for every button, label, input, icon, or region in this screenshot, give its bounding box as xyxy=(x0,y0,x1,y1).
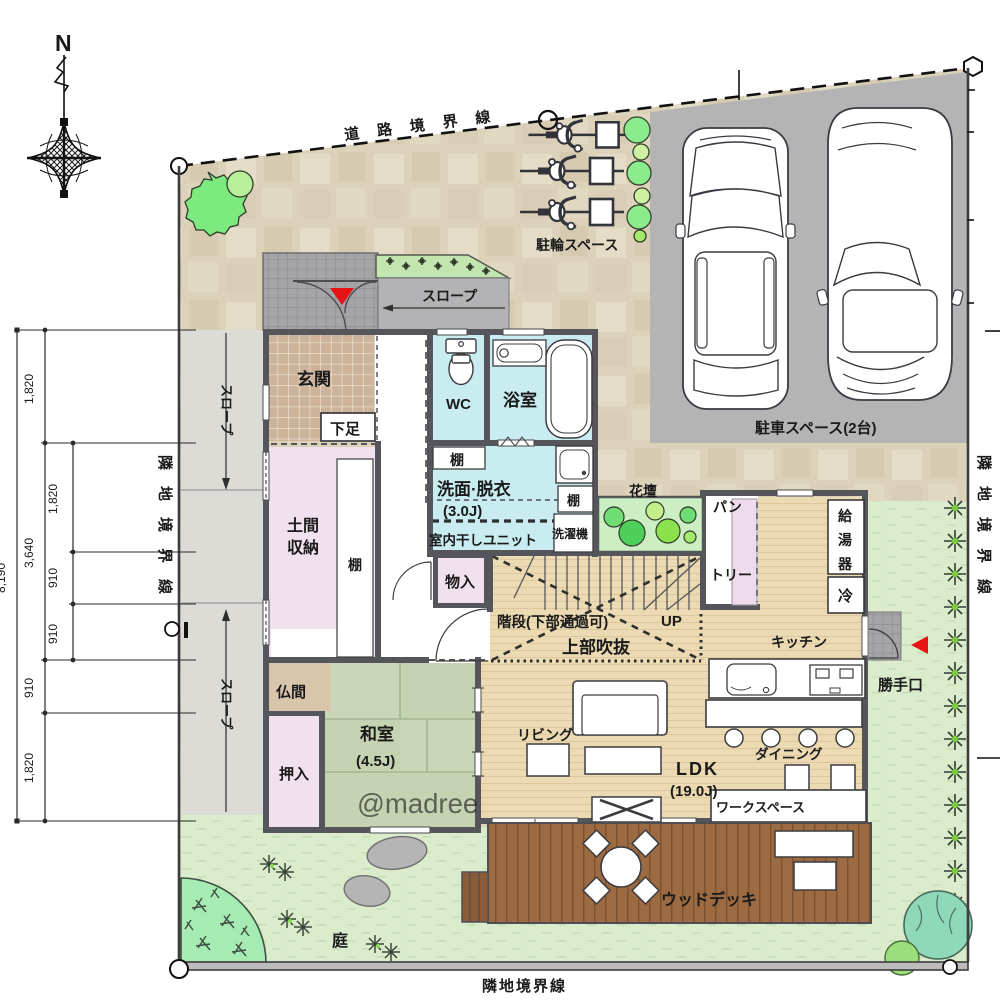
svg-text:仏間: 仏間 xyxy=(276,684,306,701)
svg-text:隣地境界線: 隣地境界線 xyxy=(156,455,174,610)
svg-text:駐輪スペース: 駐輪スペース xyxy=(536,237,618,253)
svg-text:給: 給 xyxy=(838,508,853,524)
svg-text:隣地境界線: 隣地境界線 xyxy=(482,977,567,995)
svg-text:(19.0J): (19.0J) xyxy=(670,783,718,800)
svg-text:(4.5J): (4.5J) xyxy=(356,753,395,770)
svg-text:ダイニング: ダイニング xyxy=(755,746,823,762)
svg-text:物入: 物入 xyxy=(445,573,475,591)
svg-text:8,190: 8,190 xyxy=(0,563,8,593)
svg-text:収納: 収納 xyxy=(287,538,319,557)
svg-text:室内干しユニット: 室内干しユニット xyxy=(429,532,537,548)
svg-text:上部吹抜: 上部吹抜 xyxy=(562,637,631,657)
svg-text:冷: 冷 xyxy=(838,587,853,605)
svg-text:階段(下部通過可): 階段(下部通過可) xyxy=(497,613,608,631)
svg-text:花壇: 花壇 xyxy=(629,483,657,499)
svg-text:1,820: 1,820 xyxy=(22,753,36,783)
svg-text:器: 器 xyxy=(837,556,853,572)
svg-text:ワークスペース: ワークスペース xyxy=(716,800,805,815)
svg-text:ウッドデッキ: ウッドデッキ xyxy=(661,890,757,909)
svg-text:スロープ: スロープ xyxy=(422,288,478,304)
svg-text:庭: 庭 xyxy=(332,931,348,950)
svg-text:浴室: 浴室 xyxy=(503,390,537,410)
svg-text:土間: 土間 xyxy=(287,516,319,535)
svg-text:押入: 押入 xyxy=(279,765,309,783)
svg-text:トリー: トリー xyxy=(710,567,752,583)
svg-text:和室: 和室 xyxy=(360,724,394,744)
svg-text:910: 910 xyxy=(22,678,36,698)
svg-text:棚: 棚 xyxy=(450,452,464,468)
svg-text:スロープ: スロープ xyxy=(219,678,234,730)
svg-text:リビング: リビング xyxy=(517,727,573,743)
svg-text:スロープ: スロープ xyxy=(219,384,234,436)
svg-text:UP: UP xyxy=(661,613,682,630)
svg-text:隣地境界線: 隣地境界線 xyxy=(975,455,993,610)
svg-text:3,640: 3,640 xyxy=(22,538,36,568)
svg-text:キッチン: キッチン xyxy=(771,634,827,650)
svg-text:駐車スペース(2台): 駐車スペース(2台) xyxy=(755,419,877,437)
svg-text:棚: 棚 xyxy=(567,493,580,508)
svg-text:(3.0J): (3.0J) xyxy=(443,503,482,520)
svg-text:洗濯機: 洗濯機 xyxy=(552,526,588,541)
svg-text:910: 910 xyxy=(46,568,60,588)
svg-text:910: 910 xyxy=(46,624,60,644)
svg-text:パン: パン xyxy=(713,499,742,515)
svg-text:下足: 下足 xyxy=(330,421,361,438)
svg-text:勝手口: 勝手口 xyxy=(878,676,923,694)
svg-text:1,820: 1,820 xyxy=(46,484,60,514)
svg-text:棚: 棚 xyxy=(348,557,362,573)
svg-text:N: N xyxy=(55,30,72,56)
svg-text:@madree: @madree xyxy=(357,788,478,819)
svg-text:1,820: 1,820 xyxy=(22,374,36,404)
svg-text:LDK: LDK xyxy=(676,759,719,779)
svg-text:玄関: 玄関 xyxy=(297,369,331,389)
svg-text:WC: WC xyxy=(446,396,471,413)
svg-text:湯: 湯 xyxy=(838,532,852,548)
svg-text:洗面·脱衣: 洗面·脱衣 xyxy=(437,479,511,499)
